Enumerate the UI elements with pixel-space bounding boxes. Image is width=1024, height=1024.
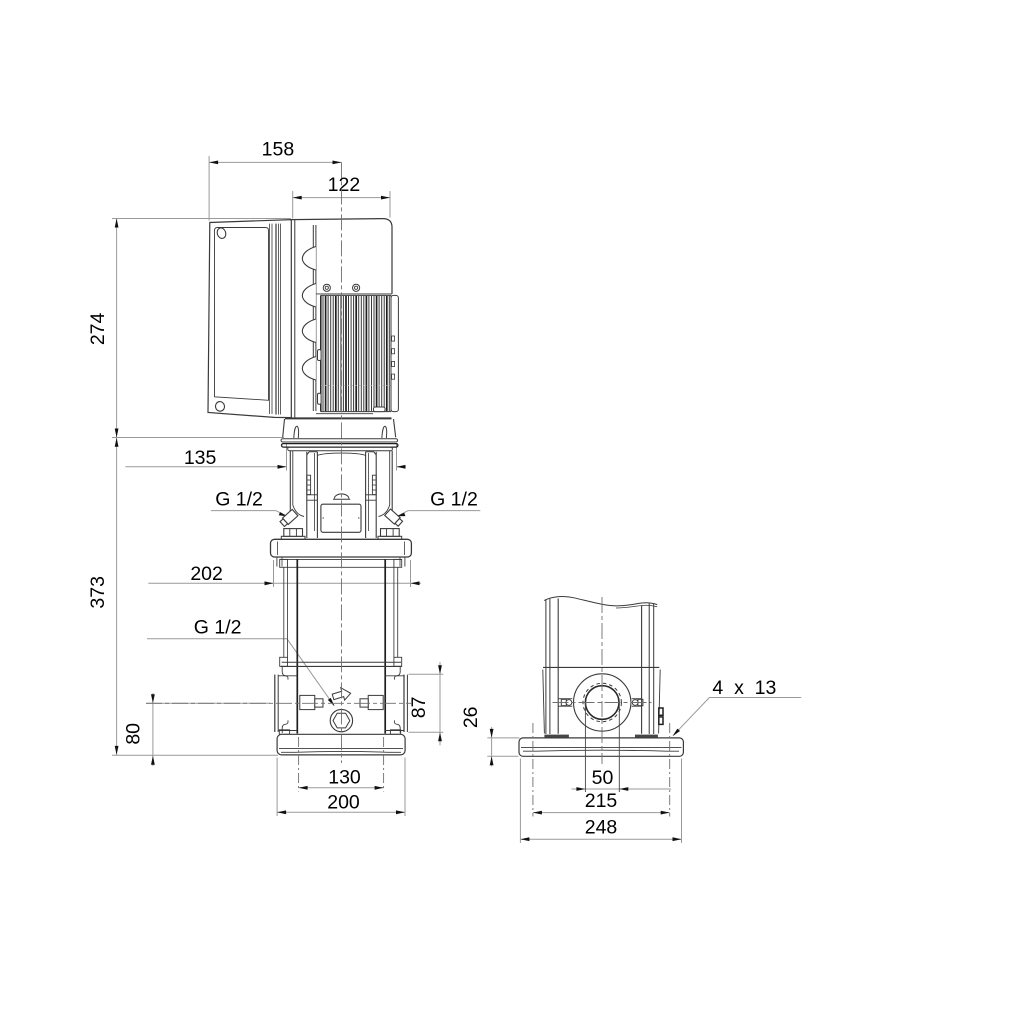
svg-text:G 1/2: G 1/2 [430, 489, 478, 511]
svg-text:G 1/2: G 1/2 [215, 489, 263, 511]
svg-text:158: 158 [262, 139, 295, 161]
svg-text:80: 80 [123, 723, 145, 745]
svg-text:50: 50 [592, 767, 614, 789]
svg-text:G 1/2: G 1/2 [194, 617, 242, 639]
svg-text:274: 274 [87, 312, 109, 345]
svg-text:130: 130 [328, 767, 361, 789]
svg-text:122: 122 [328, 174, 361, 196]
svg-text:135: 135 [184, 447, 217, 469]
svg-text:87: 87 [408, 697, 430, 719]
svg-text:200: 200 [327, 792, 360, 814]
svg-text:215: 215 [585, 790, 618, 812]
svg-text:26: 26 [460, 706, 482, 728]
svg-text:248: 248 [585, 817, 618, 839]
svg-text:202: 202 [190, 563, 223, 585]
svg-text:373: 373 [87, 576, 109, 609]
svg-text:4 x 13: 4 x 13 [712, 677, 776, 699]
